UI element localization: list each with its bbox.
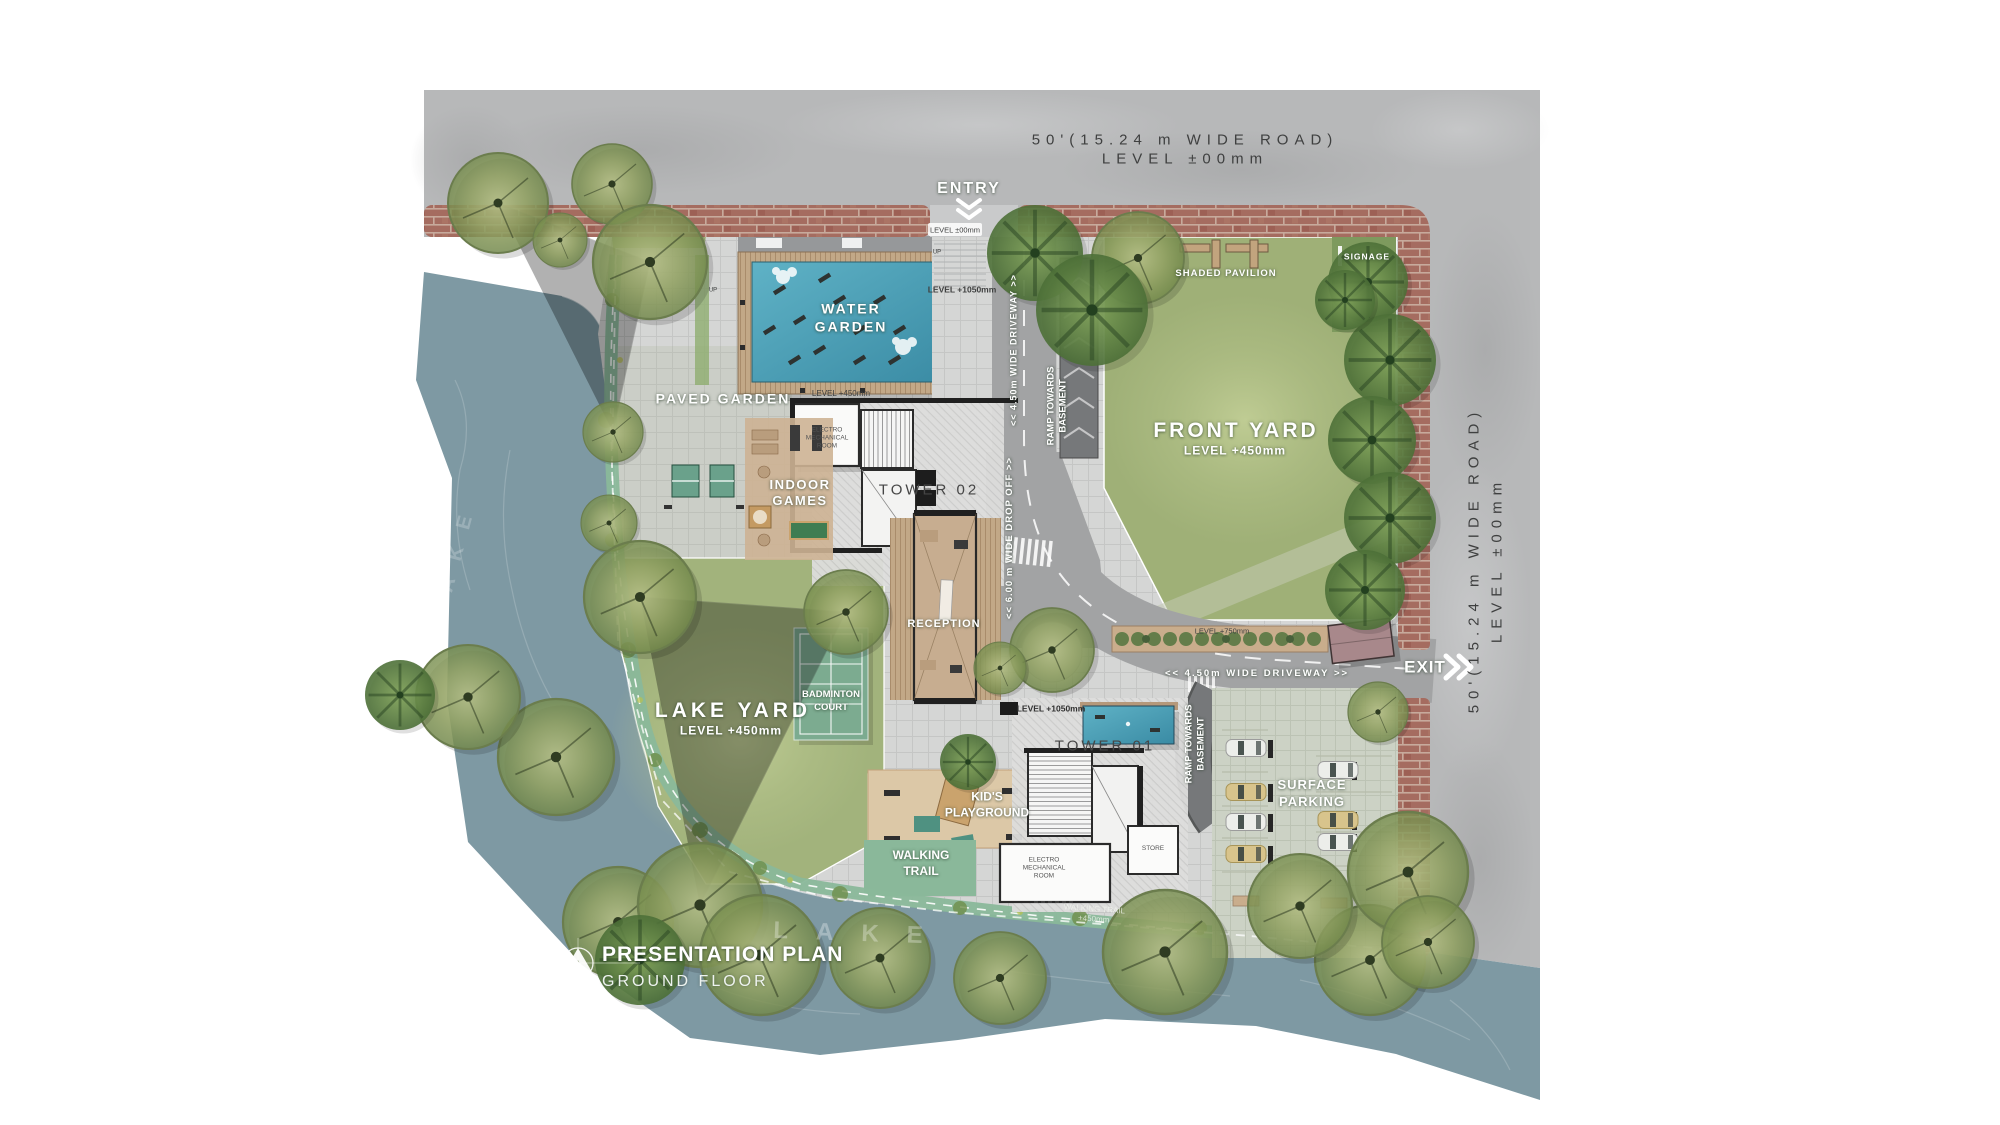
up-label-entry: UP — [933, 249, 941, 257]
exit-label: EXIT — [1404, 656, 1446, 677]
entry-level-tag: LEVEL ±00mm — [930, 225, 980, 234]
road-top-label: 50'(15.24 m WIDE ROAD)LEVEL ±00mm — [1032, 131, 1339, 169]
stair-core-t01 — [1028, 752, 1092, 836]
hedge-level-label: LEVEL +750mm — [1195, 626, 1250, 635]
electro-room-label-t01: ELECTROMECHANICALROOM — [1023, 856, 1066, 879]
tower01-level-label: LEVEL +1050mm — [1017, 704, 1086, 715]
store-label: STORE — [1142, 845, 1164, 853]
surface-parking-label: SURFACEPARKING — [1277, 777, 1346, 811]
presentation-plan-canvas: 50'(15.24 m WIDE ROAD)LEVEL ±00mm 50'(15… — [0, 0, 2000, 1125]
stair-core-t02 — [861, 410, 913, 468]
ramp-north-label: RAMP TOWARDSBASEMENT — [1046, 367, 1071, 446]
walking-trail-label: WALKINGTRAIL — [893, 847, 950, 879]
tower-02-label: TOWER 02 — [879, 482, 979, 501]
entry-plaza-level: LEVEL +1050mm — [928, 285, 997, 296]
front-yard-level-label: LEVEL +450mm — [1184, 444, 1286, 459]
badminton-court-label: BADMINTONCOURT — [802, 689, 860, 715]
drop-off-label: << 6.00 m WIDE DROP OFF >> — [1004, 457, 1016, 619]
lake-yard-level-label: LEVEL +450mm — [680, 724, 782, 739]
indoor-games-label: INDOORGAMES — [770, 477, 831, 510]
billiard-table — [790, 522, 828, 539]
tower02-level-label: LEVEL +450mm — [812, 389, 870, 399]
ramp-south-label: RAMP TOWARDSBASEMENT — [1184, 705, 1209, 784]
site-plan-drawing — [0, 0, 2000, 1125]
paved-garden-label: PAVED GARDEN — [656, 390, 791, 408]
entry-label: ENTRY — [937, 179, 1001, 199]
up-label-garden: UP — [709, 287, 717, 295]
plan-subtitle: GROUND FLOOR — [602, 972, 769, 992]
signage-label: SIGNAGE — [1344, 252, 1390, 263]
road-right-label: 50'(15.24 m WIDE ROAD)LEVEL ±00mm — [1464, 407, 1509, 714]
shaded-pavilion-label: SHADED PAVILION — [1175, 268, 1276, 280]
water-garden-label: WATERGARDEN — [815, 301, 888, 336]
reception-label: RECEPTION — [907, 618, 980, 632]
kids-playground-label: KID'SPLAYGROUND — [945, 789, 1029, 820]
driveway-exit-label: << 4.50m WIDE DRIVEWAY >> — [1165, 668, 1349, 680]
plan-title: PRESENTATION PLAN — [602, 942, 843, 968]
driveway-entry-label: << 4.50m WIDE DRIVEWAY >> — [1008, 274, 1019, 426]
reception-desk — [939, 580, 953, 621]
lake-yard-label: LAKE YARD — [655, 698, 811, 724]
electro-room-label-t02: ELECTROMECHANICALROOM — [806, 426, 849, 449]
tower-01-label: TOWER 01 — [1055, 738, 1155, 757]
front-yard-label: FRONT YARD — [1153, 418, 1318, 444]
